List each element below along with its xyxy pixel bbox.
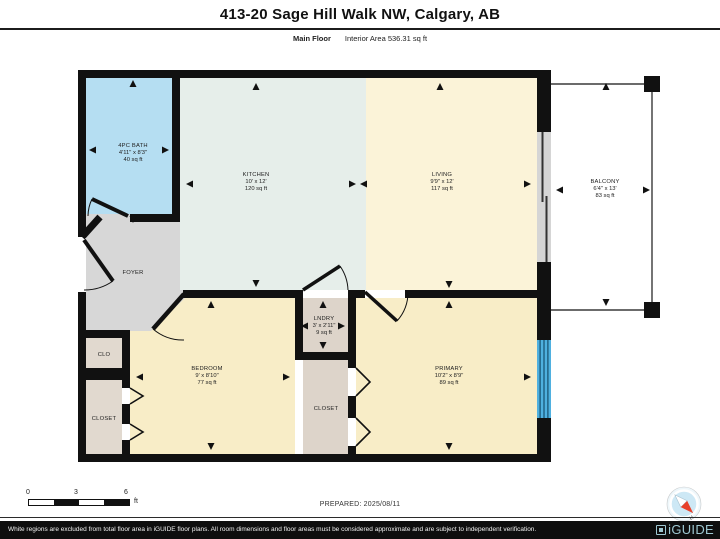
kitchen-dims: 10' x 12'	[245, 179, 266, 185]
living-name: LIVING	[432, 172, 452, 178]
footer-bar: White regions are excluded from total fl…	[0, 521, 720, 539]
sliding-door	[537, 132, 551, 262]
living-area: 117 sq ft	[431, 186, 453, 192]
bath-name: 4PC BATH	[118, 143, 148, 149]
balcony-name: BALCONY	[590, 179, 619, 185]
primary-area: 89 sq ft	[439, 380, 458, 386]
bath-area: 40 sq ft	[123, 157, 142, 163]
bedroom-name: BEDROOM	[191, 366, 222, 372]
lndry-area: 9 sq ft	[316, 330, 332, 336]
room-kitchen-floor	[180, 78, 366, 290]
balcony-post-bottom	[644, 302, 660, 318]
window-primary	[537, 340, 551, 418]
lndry-dims: 3' x 2'11"	[313, 323, 336, 329]
bath-dims: 4'11" x 8'3"	[119, 150, 147, 156]
kitchen-area: 120 sq ft	[245, 186, 268, 192]
scale-tick-0: 0	[26, 489, 30, 496]
closet-left-name: CLOSET	[92, 416, 117, 422]
bedroom-area: 77 sq ft	[197, 380, 216, 386]
floor-plan-canvas: 4PC BATH 4'11" x 8'3" 40 sq ft KITCHEN 1…	[0, 0, 720, 539]
primary-dims: 10'2" x 8'9"	[435, 373, 464, 379]
footer-divider	[0, 517, 720, 518]
closet-mid-name: CLOSET	[314, 406, 339, 412]
balcony-area: 83 sq ft	[595, 193, 614, 199]
scale-tick-6: 6	[124, 489, 128, 496]
disclaimer-text: White regions are excluded from total fl…	[8, 521, 536, 539]
clo-name: CLO	[98, 352, 111, 358]
iguide-logo-icon	[656, 525, 666, 535]
balcony-dims: 6'4" x 13'	[593, 186, 616, 192]
prepared-date: PREPARED: 2025/08/11	[0, 501, 720, 508]
balcony-post-top	[644, 76, 660, 92]
living-dims: 9'9" x 12'	[430, 179, 453, 185]
bedroom-dims: 9' x 8'10"	[195, 373, 218, 379]
floor-plan-page: 413-20 Sage Hill Walk NW, Calgary, AB Ma…	[0, 0, 720, 539]
scale-tick-3: 3	[74, 489, 78, 496]
foyer-name: FOYER	[123, 270, 144, 276]
iguide-logo: iGUIDE	[656, 521, 714, 539]
primary-name: PRIMARY	[435, 366, 463, 372]
kitchen-name: KITCHEN	[243, 172, 270, 178]
room-fills	[86, 78, 656, 454]
iguide-brand-text: iGUIDE	[668, 521, 714, 539]
lndry-name: LNDRY	[314, 316, 335, 322]
